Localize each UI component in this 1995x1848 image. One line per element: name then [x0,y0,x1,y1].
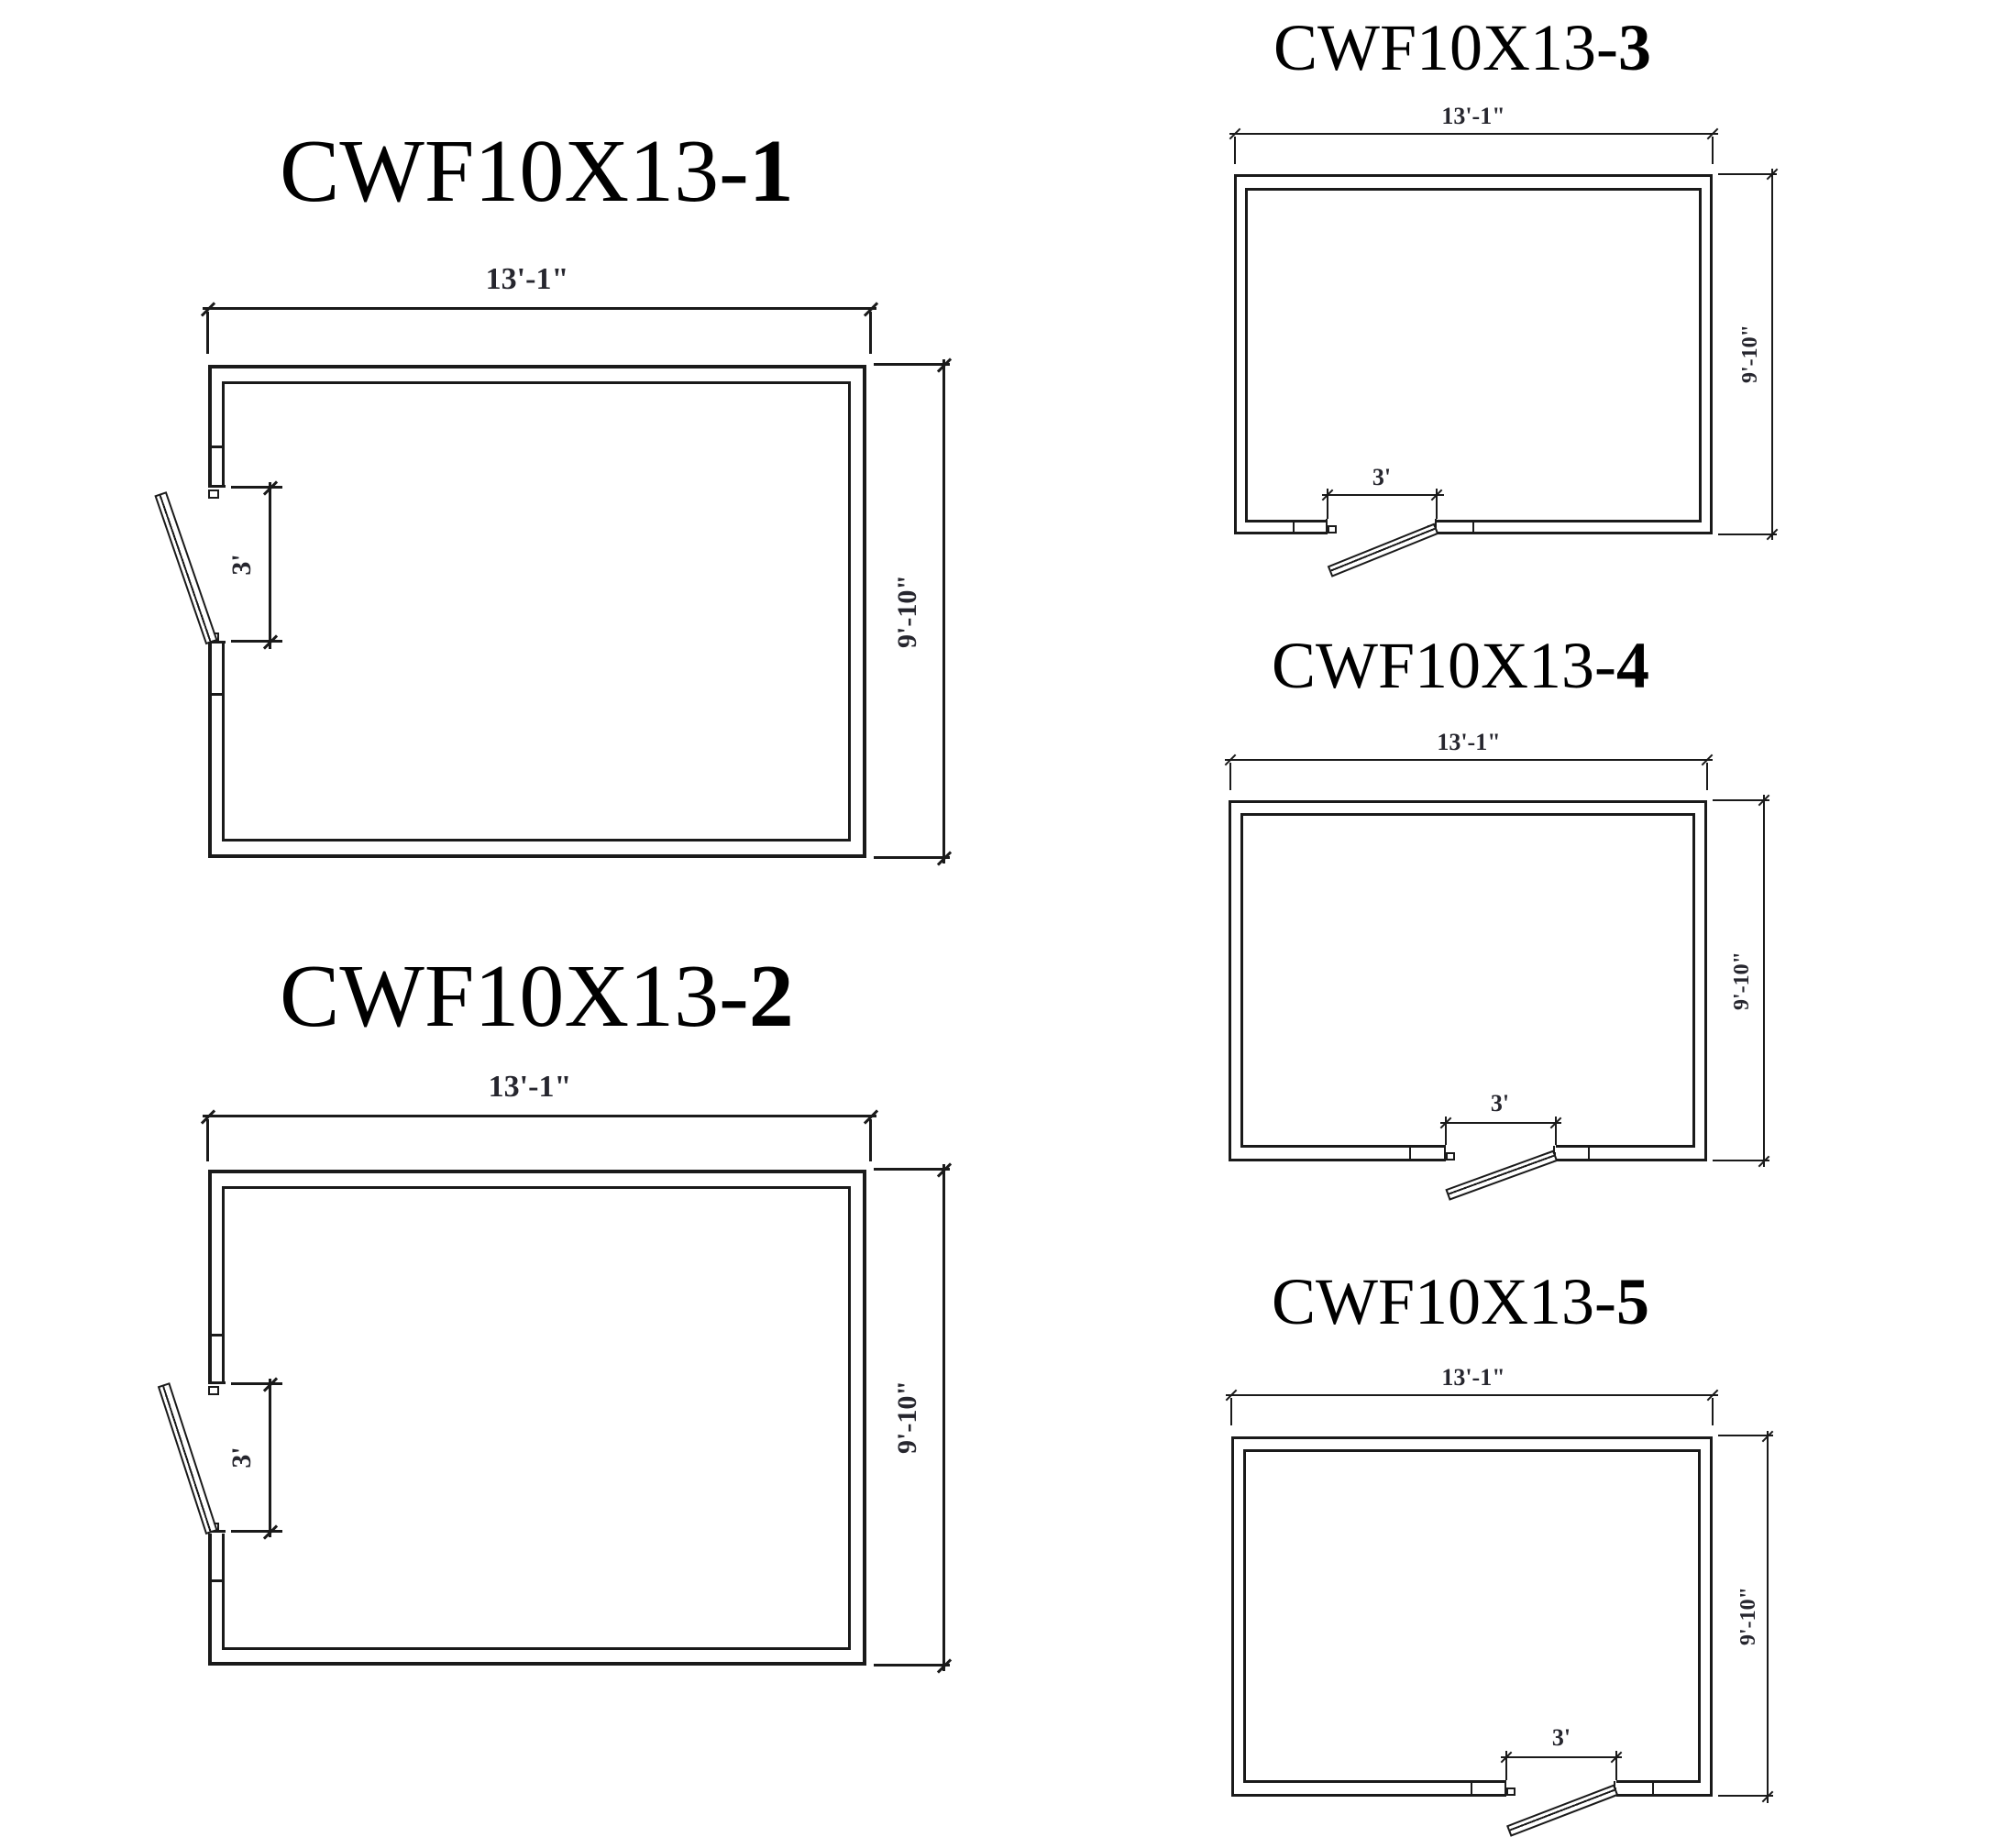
plan-1-title-suffix: 1 [749,122,794,221]
plan-4-room-inner-wall [1240,813,1695,1148]
plan-1-width-ext-line [869,312,872,354]
plan-1-title-prefix: CWF10X13- [280,122,749,221]
plan-2-width-label: 13'-1" [466,1072,594,1103]
plan-3-width-ext-line [1234,137,1236,164]
plan-1-height-ext-line [874,856,950,859]
plan-5-room-inner-wall [1243,1449,1701,1783]
plan-1-title: CWF10X13-1 [280,126,793,216]
plan-1-panel-seam [208,445,225,448]
plan-3-height-dim-line [1771,169,1773,540]
plan-5-height-label: 9'-10" [1737,1566,1763,1666]
plan-2-room-inner-wall [222,1186,851,1650]
plan-1-door-stop-notch [208,489,219,499]
plan-3-width-dim-line [1229,133,1718,135]
plan-1-height-dim-line [942,359,945,863]
plan-5-width-dim-line [1226,1394,1718,1396]
plan-1-width-dim-line [203,307,876,310]
plan-3-door-stop-notch [1328,525,1337,533]
plan-4-width-dim-line [1225,759,1713,761]
plan-2-door-dim-line [269,1379,271,1537]
plan-5-door-label: 3' [1534,1726,1589,1750]
plan-5-title-prefix: CWF10X13- [1272,1265,1616,1338]
plan-5-door-dim-line [1501,1756,1622,1758]
plan-4-panel-seam [1588,1147,1590,1161]
plan-3-room-inner-wall [1245,188,1702,522]
plan-2-door-label: 3' [228,1430,259,1485]
plan-2-height-ext-line [874,1664,950,1666]
plan-5-width-ext-line [1230,1398,1232,1425]
plan-5-width-label: 13'-1" [1423,1366,1524,1390]
plan-2-height-dim-line [942,1164,945,1671]
plan-2-width-dim-line [203,1115,876,1117]
plan-3-title-prefix: CWF10X13- [1273,11,1618,84]
plan-2-door-stop-notch [208,1386,219,1395]
plan-2-panel-seam [208,1579,225,1582]
plan-2-title: CWF10X13-2 [280,951,793,1041]
plan-3-panel-seam [1472,520,1474,534]
plan-4-height-label: 9'-10" [1731,930,1757,1031]
plan-1-door-ext-line [231,640,282,643]
plan-2-width-ext-line [869,1119,872,1161]
plan-4-door-stop-notch [1446,1152,1455,1160]
plan-1-height-ext-line [874,363,950,366]
plan-4-width-label: 13'-1" [1418,731,1519,754]
plan-1-door-ext-line [231,486,282,489]
plan-3-title: CWF10X13-3 [1273,15,1651,81]
plan-3-door-label: 3' [1354,466,1409,489]
plan-5-panel-seam [1652,1782,1654,1797]
plan-4-panel-seam [1409,1147,1411,1161]
plan-5-title-suffix: 5 [1616,1265,1649,1338]
plan-1-width-label: 13'-1" [463,264,591,295]
plan-4-door-label: 3' [1472,1092,1527,1116]
plan-1-door-label: 3' [228,537,259,592]
plan-3-panel-seam [1293,520,1295,534]
plan-1-jamb-cap [208,485,226,488]
plan-2-width-ext-line [206,1119,209,1161]
plan-3-title-suffix: 3 [1618,11,1651,84]
plan-2-door-ext-line [231,1530,282,1533]
plan-4-height-dim-line [1763,795,1765,1167]
plan-3-width-label: 13'-1" [1423,104,1524,128]
plan-4-title: CWF10X13-4 [1272,632,1649,698]
plan-4-title-prefix: CWF10X13- [1272,629,1616,702]
plan-3-height-ext-line [1718,533,1777,535]
plan-1-panel-seam [208,693,225,696]
plan-4-width-ext-line [1706,763,1708,790]
plan-3-door-dim-line [1322,494,1444,496]
plan-5-width-ext-line [1712,1398,1714,1425]
plan-2-height-label: 9'-10" [894,1362,925,1472]
plan-4-height-ext-line [1713,1160,1769,1161]
plan-2-title-suffix: 2 [749,947,794,1046]
plan-2-jamb-cap [208,1381,226,1384]
plan-5-panel-seam [1471,1782,1472,1797]
plan-4-title-suffix: 4 [1616,629,1649,702]
plan-4-width-ext-line [1229,763,1231,790]
plan-3-height-label: 9'-10" [1739,303,1765,404]
plan-4-door-dim-line [1440,1122,1561,1124]
plan-3-width-ext-line [1712,137,1714,164]
plan-1-door-dim-line [269,482,271,649]
plan-5-door-stop-notch [1506,1787,1516,1796]
plan-1-room-inner-wall [222,381,851,841]
drawing-sheet: CWF10X13-1 13'-1" 9'-10" 3' CWF10X13-2 1 [0,0,1995,1848]
plan-5-title: CWF10X13-5 [1272,1269,1649,1335]
plan-1-height-label: 9'-10" [894,556,925,666]
plan-2-panel-seam [208,1334,225,1336]
plan-2-door-ext-line [231,1382,282,1385]
plan-3-height-ext-line [1718,173,1777,175]
plan-5-height-dim-line [1767,1431,1769,1803]
plan-1-width-ext-line [206,312,209,354]
plan-2-height-ext-line [874,1168,950,1171]
plan-2-title-prefix: CWF10X13- [280,947,749,1046]
